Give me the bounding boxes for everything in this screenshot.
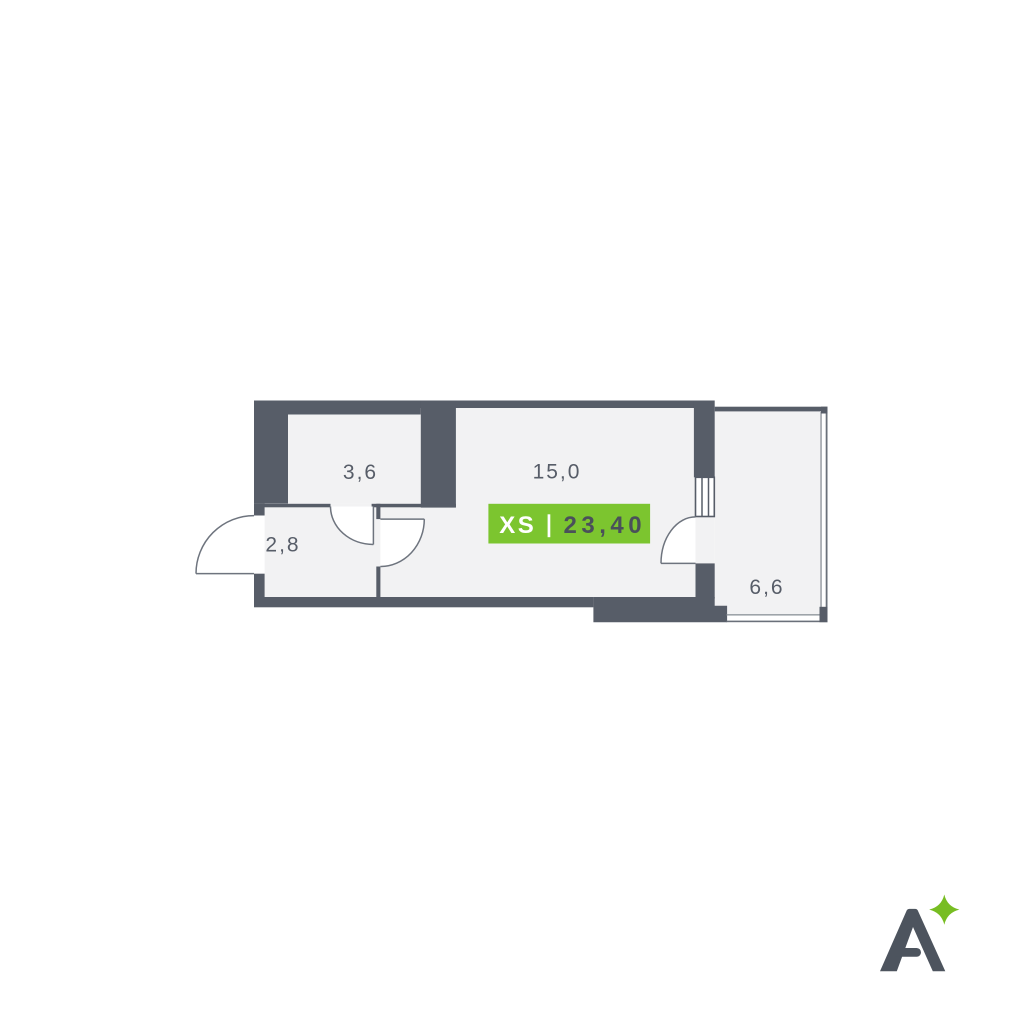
svg-text:2,8: 2,8	[265, 533, 300, 556]
svg-text:23,40: 23,40	[564, 512, 647, 539]
svg-text:3,6: 3,6	[343, 461, 378, 484]
svg-text:6,6: 6,6	[749, 576, 784, 599]
svg-text:15,0: 15,0	[533, 460, 582, 483]
svg-text:XS: XS	[499, 512, 536, 539]
